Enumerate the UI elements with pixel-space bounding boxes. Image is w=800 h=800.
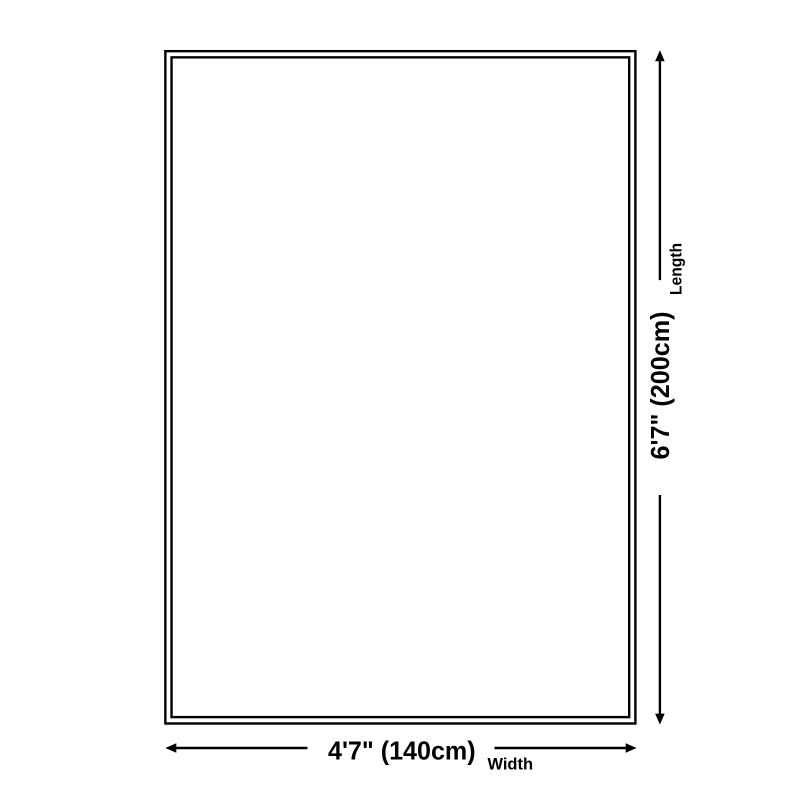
svg-text:4'7" (140cm): 4'7" (140cm) xyxy=(328,738,476,766)
svg-text:Length: Length xyxy=(667,243,686,295)
svg-text:Width: Width xyxy=(488,754,534,773)
svg-text:6'7" (200cm): 6'7" (200cm) xyxy=(647,312,675,460)
